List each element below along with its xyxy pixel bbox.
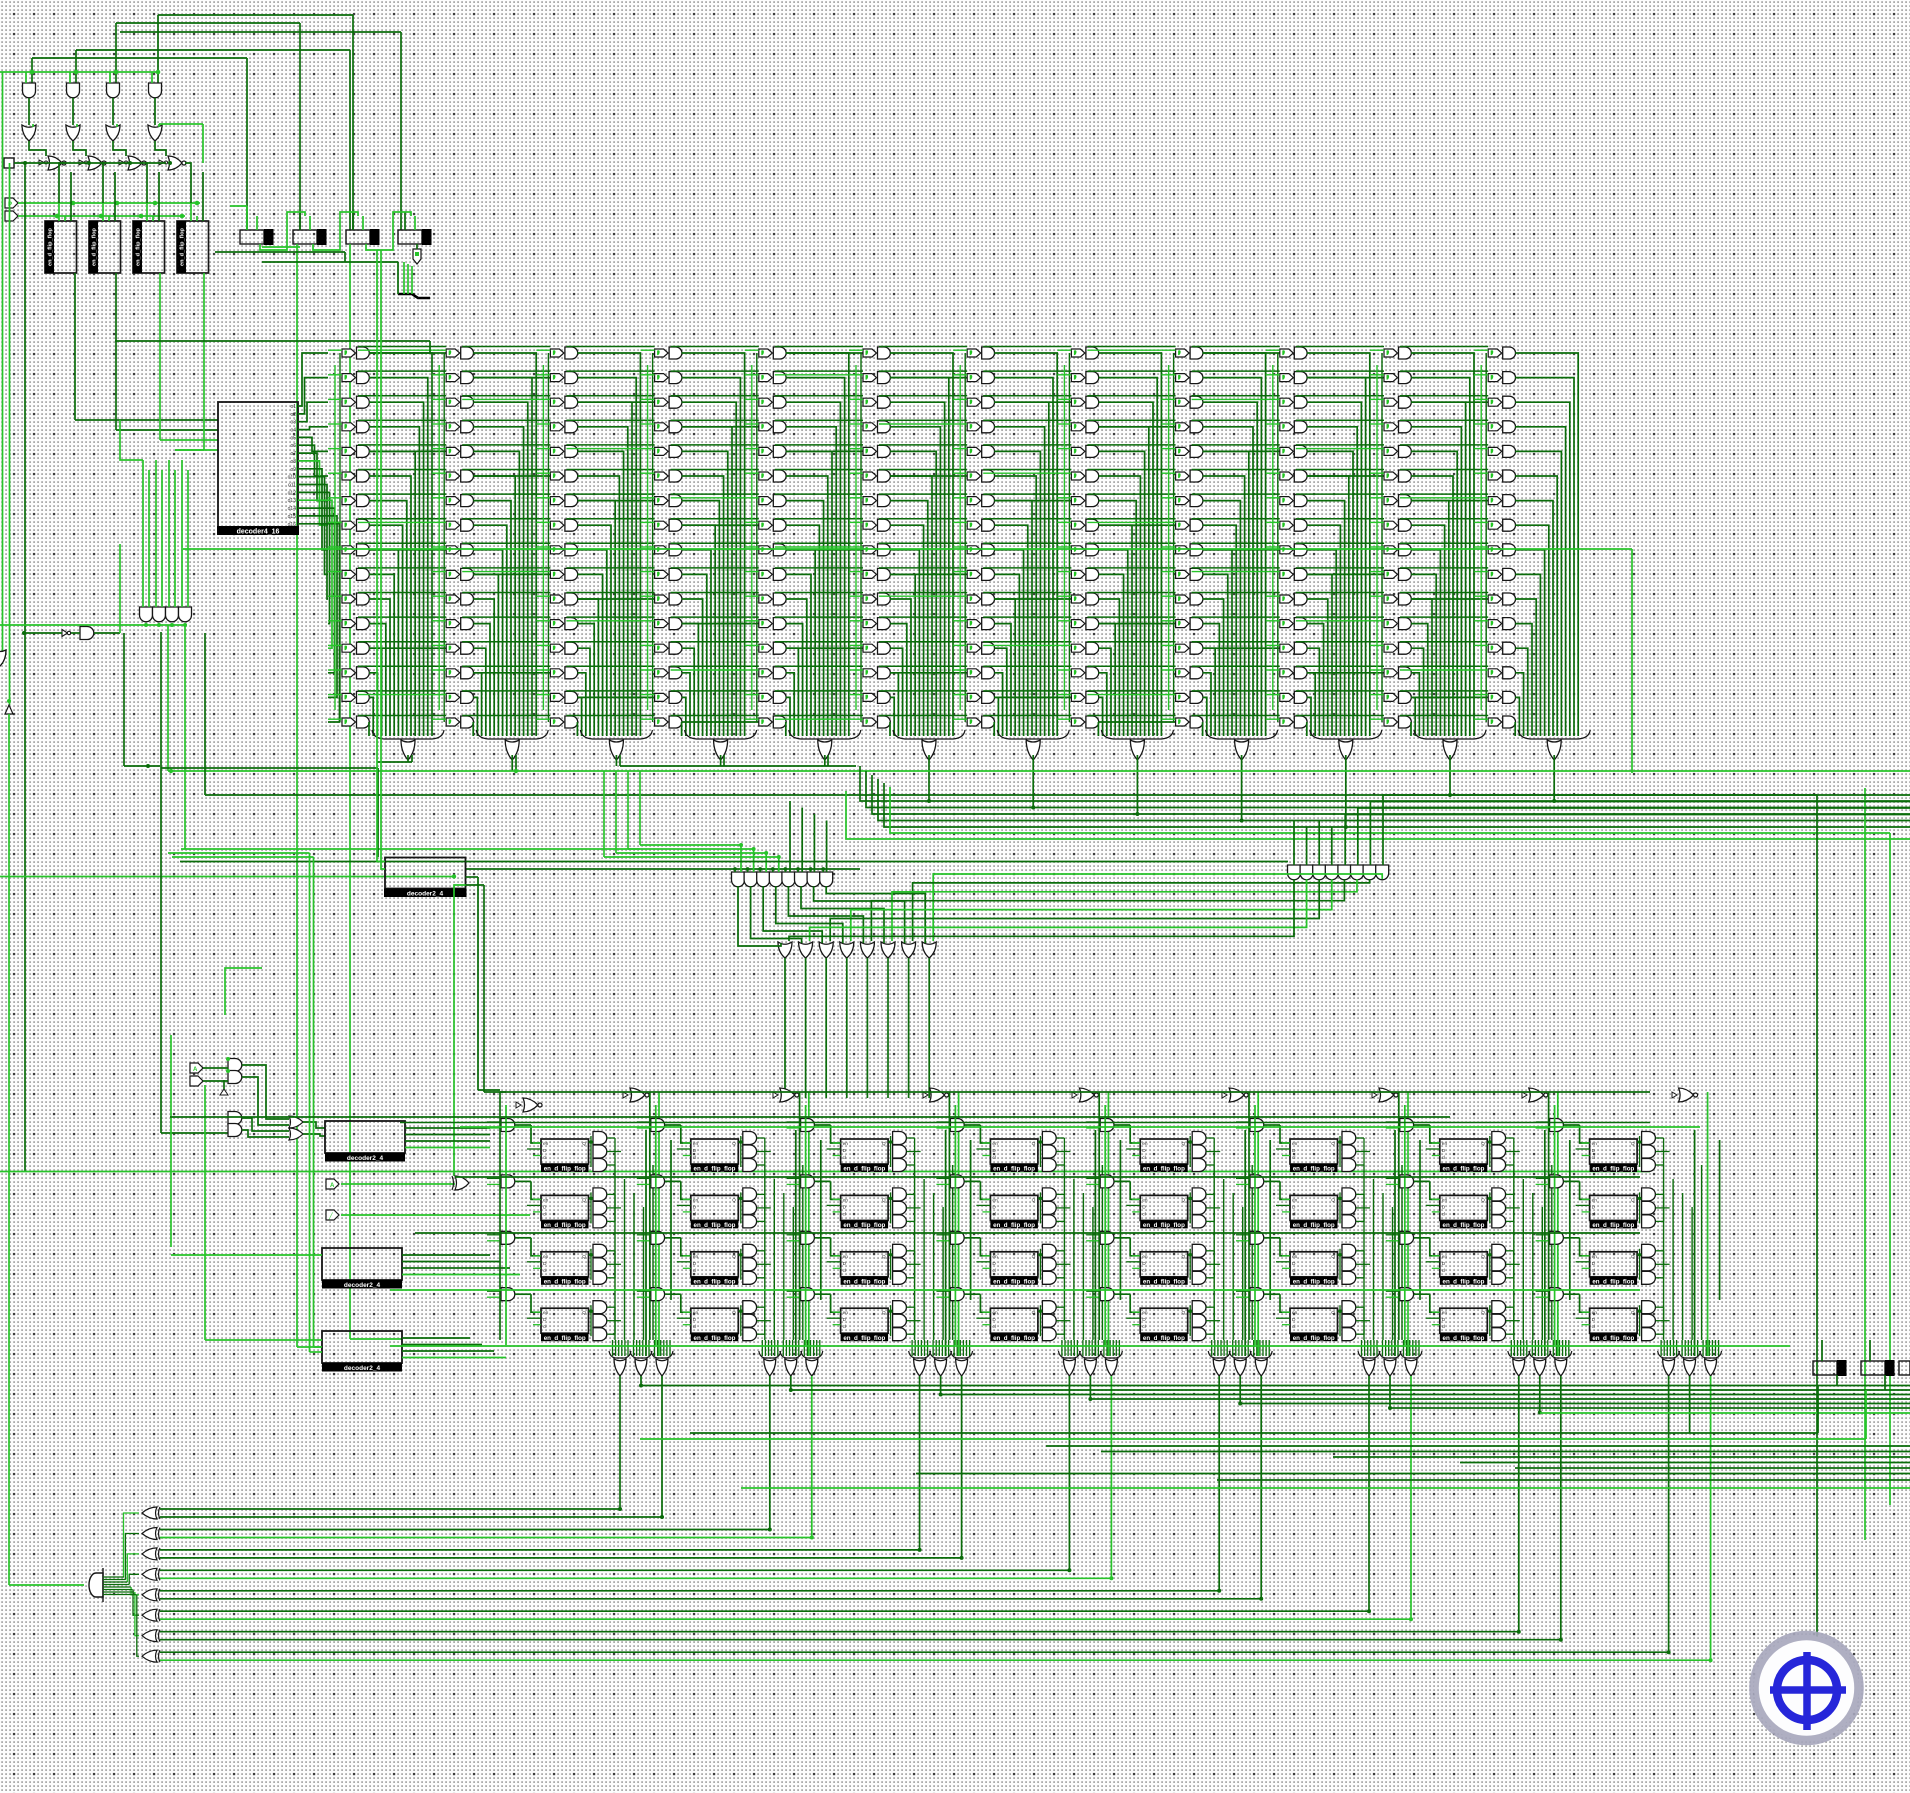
svg-text:D: D xyxy=(992,1261,996,1267)
svg-text:en_d_flip_flop: en_d_flip_flop xyxy=(1293,1335,1335,1342)
svg-text:o5: o5 xyxy=(290,435,296,441)
svg-text:Q: Q xyxy=(732,1310,736,1316)
svg-text:o14: o14 xyxy=(288,506,297,512)
svg-text:Q: Q xyxy=(1331,1254,1335,1260)
svg-text:en_d_flip_flop: en_d_flip_flop xyxy=(843,1278,885,1285)
svg-text:en_d_flip_flop: en_d_flip_flop xyxy=(694,1278,736,1285)
svg-text:cl: cl xyxy=(1442,1211,1445,1217)
svg-text:en_d_flip_flop: en_d_flip_flop xyxy=(92,227,98,265)
svg-text:o2: o2 xyxy=(290,412,296,418)
svg-text:Q: Q xyxy=(1181,1310,1185,1316)
svg-text:Q: Q xyxy=(1481,1254,1485,1260)
svg-text:Q: Q xyxy=(582,1197,586,1203)
svg-text:en_d_flip_flop: en_d_flip_flop xyxy=(180,227,186,265)
svg-text:en: en xyxy=(1592,1311,1598,1316)
svg-text:en_d_flip_flop: en_d_flip_flop xyxy=(1293,1222,1335,1229)
svg-text:cl: cl xyxy=(1592,1324,1595,1330)
svg-text:D: D xyxy=(693,1148,697,1154)
svg-text:en_d_flip_flop: en_d_flip_flop xyxy=(1443,1278,1485,1285)
svg-text:cl: cl xyxy=(1142,1155,1145,1161)
svg-text:en: en xyxy=(1292,1198,1298,1203)
svg-text:Q: Q xyxy=(1181,1141,1185,1147)
svg-text:en_d_flip_flop: en_d_flip_flop xyxy=(1443,1166,1485,1173)
svg-text:Q: Q xyxy=(1331,1197,1335,1203)
svg-text:en: en xyxy=(1292,1142,1298,1147)
svg-text:en_d_flip_flop: en_d_flip_flop xyxy=(544,1278,586,1285)
svg-text:en_d_flip_flop: en_d_flip_flop xyxy=(694,1222,736,1229)
svg-text:Q: Q xyxy=(1481,1141,1485,1147)
svg-text:D: D xyxy=(1292,1317,1296,1323)
svg-text:D: D xyxy=(1292,1148,1296,1154)
svg-text:en_d_flip_flop: en_d_flip_flop xyxy=(843,1166,885,1173)
svg-text:en: en xyxy=(693,1142,699,1147)
svg-text:en_d_flip_flop: en_d_flip_flop xyxy=(993,1278,1035,1285)
svg-text:cl: cl xyxy=(992,1268,995,1274)
svg-text:cl: cl xyxy=(693,1268,696,1274)
svg-text:Q: Q xyxy=(1331,1141,1335,1147)
svg-text:en_d_flip_flop: en_d_flip_flop xyxy=(1592,1222,1634,1229)
svg-text:cl: cl xyxy=(843,1268,846,1274)
svg-text:en: en xyxy=(693,1198,699,1203)
svg-text:o12: o12 xyxy=(288,490,297,496)
svg-text:D: D xyxy=(1142,1204,1146,1210)
svg-text:en_d_flip_flop: en_d_flip_flop xyxy=(843,1335,885,1342)
svg-text:A: A xyxy=(193,1067,198,1073)
svg-text:en: en xyxy=(693,1255,699,1260)
svg-text:en: en xyxy=(992,1198,998,1203)
svg-text:cl: cl xyxy=(1292,1268,1295,1274)
svg-text:cl: cl xyxy=(543,1155,546,1161)
svg-text:en: en xyxy=(843,1311,849,1316)
svg-text:╱: ╱ xyxy=(328,1212,333,1220)
svg-text:D: D xyxy=(1442,1148,1446,1154)
svg-text:cl: cl xyxy=(1142,1268,1145,1274)
svg-text:o9: o9 xyxy=(290,467,296,473)
svg-text:Q: Q xyxy=(1631,1197,1635,1203)
svg-text:en: en xyxy=(1142,1142,1148,1147)
svg-text:D: D xyxy=(693,1261,697,1267)
svg-text:Q: Q xyxy=(882,1141,886,1147)
svg-text:en: en xyxy=(843,1198,849,1203)
svg-text:en: en xyxy=(1292,1255,1298,1260)
svg-text:cl: cl xyxy=(543,1268,546,1274)
svg-text:D: D xyxy=(1292,1261,1296,1267)
svg-text:en_d_flip_flop: en_d_flip_flop xyxy=(694,1335,736,1342)
svg-text:decoder4_16: decoder4_16 xyxy=(237,529,280,536)
svg-text:Q: Q xyxy=(582,1310,586,1316)
svg-text:Q: Q xyxy=(1181,1197,1185,1203)
svg-text:D: D xyxy=(543,1317,547,1323)
svg-text:cl: cl xyxy=(693,1155,696,1161)
svg-text:D: D xyxy=(543,1261,547,1267)
svg-text:en: en xyxy=(843,1142,849,1147)
svg-text:o1: o1 xyxy=(290,404,296,410)
svg-text:D: D xyxy=(1292,1204,1296,1210)
svg-text:Q: Q xyxy=(1032,1310,1036,1316)
svg-text:en_d_flip_flop: en_d_flip_flop xyxy=(1143,1335,1185,1342)
svg-text:en_d_flip_flop: en_d_flip_flop xyxy=(1293,1278,1335,1285)
svg-text:cl: cl xyxy=(1292,1324,1295,1330)
svg-text:decoder2_4: decoder2_4 xyxy=(347,1155,384,1162)
svg-text:o6: o6 xyxy=(290,443,296,449)
svg-text:D: D xyxy=(1142,1148,1146,1154)
svg-text:o8: o8 xyxy=(290,459,296,465)
svg-text:en: en xyxy=(693,1311,699,1316)
svg-text:en_d_flip_flop: en_d_flip_flop xyxy=(1592,1166,1634,1173)
svg-text:cl: cl xyxy=(1592,1211,1595,1217)
svg-text:en: en xyxy=(1592,1198,1598,1203)
svg-text:o15: o15 xyxy=(288,514,297,520)
svg-text:en: en xyxy=(1442,1198,1448,1203)
svg-text:Q: Q xyxy=(582,1254,586,1260)
svg-text:cl: cl xyxy=(1142,1324,1145,1330)
svg-text:cl: cl xyxy=(843,1211,846,1217)
svg-text:en_d_flip_flop: en_d_flip_flop xyxy=(843,1222,885,1229)
svg-text:decoder2_4: decoder2_4 xyxy=(344,1365,381,1372)
svg-text:Q: Q xyxy=(1032,1197,1036,1203)
svg-text:cl: cl xyxy=(1292,1155,1295,1161)
svg-text:en: en xyxy=(1442,1142,1448,1147)
svg-text:D: D xyxy=(843,1261,847,1267)
svg-text:cl: cl xyxy=(843,1155,846,1161)
svg-text:Q: Q xyxy=(882,1254,886,1260)
svg-text:en: en xyxy=(992,1142,998,1147)
svg-text:cl: cl xyxy=(1442,1268,1445,1274)
svg-text:en_d_flip_flop: en_d_flip_flop xyxy=(1592,1335,1634,1342)
svg-text:en_d_flip_flop: en_d_flip_flop xyxy=(544,1335,586,1342)
svg-text:en: en xyxy=(1592,1255,1598,1260)
svg-text:D: D xyxy=(1592,1148,1596,1154)
svg-text:Q: Q xyxy=(1481,1197,1485,1203)
svg-text:D: D xyxy=(992,1204,996,1210)
svg-text:Q: Q xyxy=(1631,1141,1635,1147)
svg-text:Q: Q xyxy=(1631,1310,1635,1316)
svg-text:Q: Q xyxy=(1331,1310,1335,1316)
svg-text:cl: cl xyxy=(992,1324,995,1330)
svg-text:D: D xyxy=(1592,1261,1596,1267)
svg-text:en_d_flip_flop: en_d_flip_flop xyxy=(1293,1166,1335,1173)
svg-text:en: en xyxy=(992,1311,998,1316)
svg-text:Q: Q xyxy=(1181,1254,1185,1260)
svg-text:D: D xyxy=(543,1204,547,1210)
svg-text:Q: Q xyxy=(582,1141,586,1147)
svg-text:o16: o16 xyxy=(288,522,297,528)
svg-text:Q: Q xyxy=(1032,1254,1036,1260)
svg-text:o3: o3 xyxy=(290,420,296,426)
svg-text:cl: cl xyxy=(843,1324,846,1330)
svg-text:en: en xyxy=(1142,1198,1148,1203)
svg-text:en: en xyxy=(843,1255,849,1260)
svg-text:en_d_flip_flop: en_d_flip_flop xyxy=(48,227,54,265)
svg-text:en_d_flip_flop: en_d_flip_flop xyxy=(1443,1335,1485,1342)
svg-text:en: en xyxy=(543,1198,549,1203)
svg-text:decoder2_4: decoder2_4 xyxy=(344,1282,381,1289)
svg-text:en: en xyxy=(1592,1142,1598,1147)
svg-text:en_d_flip_flop: en_d_flip_flop xyxy=(1143,1166,1185,1173)
svg-text:cl: cl xyxy=(1442,1155,1445,1161)
svg-text:en_d_flip_flop: en_d_flip_flop xyxy=(993,1335,1035,1342)
svg-text:D: D xyxy=(693,1204,697,1210)
svg-text:en: en xyxy=(1142,1255,1148,1260)
svg-text:decoder2_4: decoder2_4 xyxy=(407,891,444,898)
svg-text:cl: cl xyxy=(543,1324,546,1330)
svg-text:en_d_flip_flop: en_d_flip_flop xyxy=(136,227,142,265)
svg-text:en_d_flip_flop: en_d_flip_flop xyxy=(1143,1222,1185,1229)
svg-text:cl: cl xyxy=(693,1324,696,1330)
svg-text:en_d_flip_flop: en_d_flip_flop xyxy=(993,1166,1035,1173)
svg-text:Q: Q xyxy=(882,1310,886,1316)
svg-text:D: D xyxy=(1592,1317,1596,1323)
svg-text:o7: o7 xyxy=(290,451,296,457)
svg-text:o4: o4 xyxy=(290,428,296,434)
svg-text:cl: cl xyxy=(992,1155,995,1161)
svg-text:D: D xyxy=(1142,1317,1146,1323)
svg-text:en: en xyxy=(543,1311,549,1316)
svg-text:Q: Q xyxy=(732,1141,736,1147)
svg-text:cl: cl xyxy=(1592,1155,1595,1161)
svg-text:cl: cl xyxy=(1592,1268,1595,1274)
svg-text:D: D xyxy=(693,1317,697,1323)
svg-text:Q: Q xyxy=(1481,1310,1485,1316)
svg-text:D: D xyxy=(1442,1261,1446,1267)
svg-text:cl: cl xyxy=(693,1211,696,1217)
svg-text:en_d_flip_flop: en_d_flip_flop xyxy=(694,1166,736,1173)
svg-text:Q: Q xyxy=(1032,1141,1036,1147)
svg-text:en_d_flip_flop: en_d_flip_flop xyxy=(1143,1278,1185,1285)
svg-text:en: en xyxy=(992,1255,998,1260)
svg-text:D: D xyxy=(1592,1204,1596,1210)
svg-text:o10: o10 xyxy=(288,475,297,481)
svg-text:cl: cl xyxy=(1292,1211,1295,1217)
svg-text:en_d_flip_flop: en_d_flip_flop xyxy=(1443,1222,1485,1229)
svg-text:en_d_flip_flop: en_d_flip_flop xyxy=(544,1222,586,1229)
svg-text:en: en xyxy=(1442,1311,1448,1316)
svg-text:en: en xyxy=(1442,1255,1448,1260)
svg-text:cl: cl xyxy=(1142,1211,1145,1217)
svg-text:o13: o13 xyxy=(288,498,297,504)
svg-text:D: D xyxy=(543,1148,547,1154)
svg-text:o11: o11 xyxy=(288,483,296,489)
svg-text:cl: cl xyxy=(1442,1324,1445,1330)
svg-text:A: A xyxy=(330,1183,335,1189)
svg-text:Q: Q xyxy=(882,1197,886,1203)
svg-text:D: D xyxy=(992,1317,996,1323)
svg-text:en_d_flip_flop: en_d_flip_flop xyxy=(1592,1278,1634,1285)
svg-text:en: en xyxy=(1142,1311,1148,1316)
svg-text:cl: cl xyxy=(543,1211,546,1217)
svg-text:Q: Q xyxy=(732,1197,736,1203)
svg-text:en: en xyxy=(543,1255,549,1260)
svg-text:en_d_flip_flop: en_d_flip_flop xyxy=(544,1166,586,1173)
svg-text:D: D xyxy=(992,1148,996,1154)
svg-text:cl: cl xyxy=(992,1211,995,1217)
svg-text:en: en xyxy=(543,1142,549,1147)
svg-text:Q: Q xyxy=(1631,1254,1635,1260)
svg-text:D: D xyxy=(843,1317,847,1323)
svg-text:Q: Q xyxy=(732,1254,736,1260)
svg-text:en_d_flip_flop: en_d_flip_flop xyxy=(993,1222,1035,1229)
svg-text:D: D xyxy=(1442,1317,1446,1323)
svg-text:D: D xyxy=(1442,1204,1446,1210)
svg-text:en: en xyxy=(1292,1311,1298,1316)
svg-text:D: D xyxy=(1142,1261,1146,1267)
svg-text:D: D xyxy=(843,1148,847,1154)
svg-text:D: D xyxy=(843,1204,847,1210)
